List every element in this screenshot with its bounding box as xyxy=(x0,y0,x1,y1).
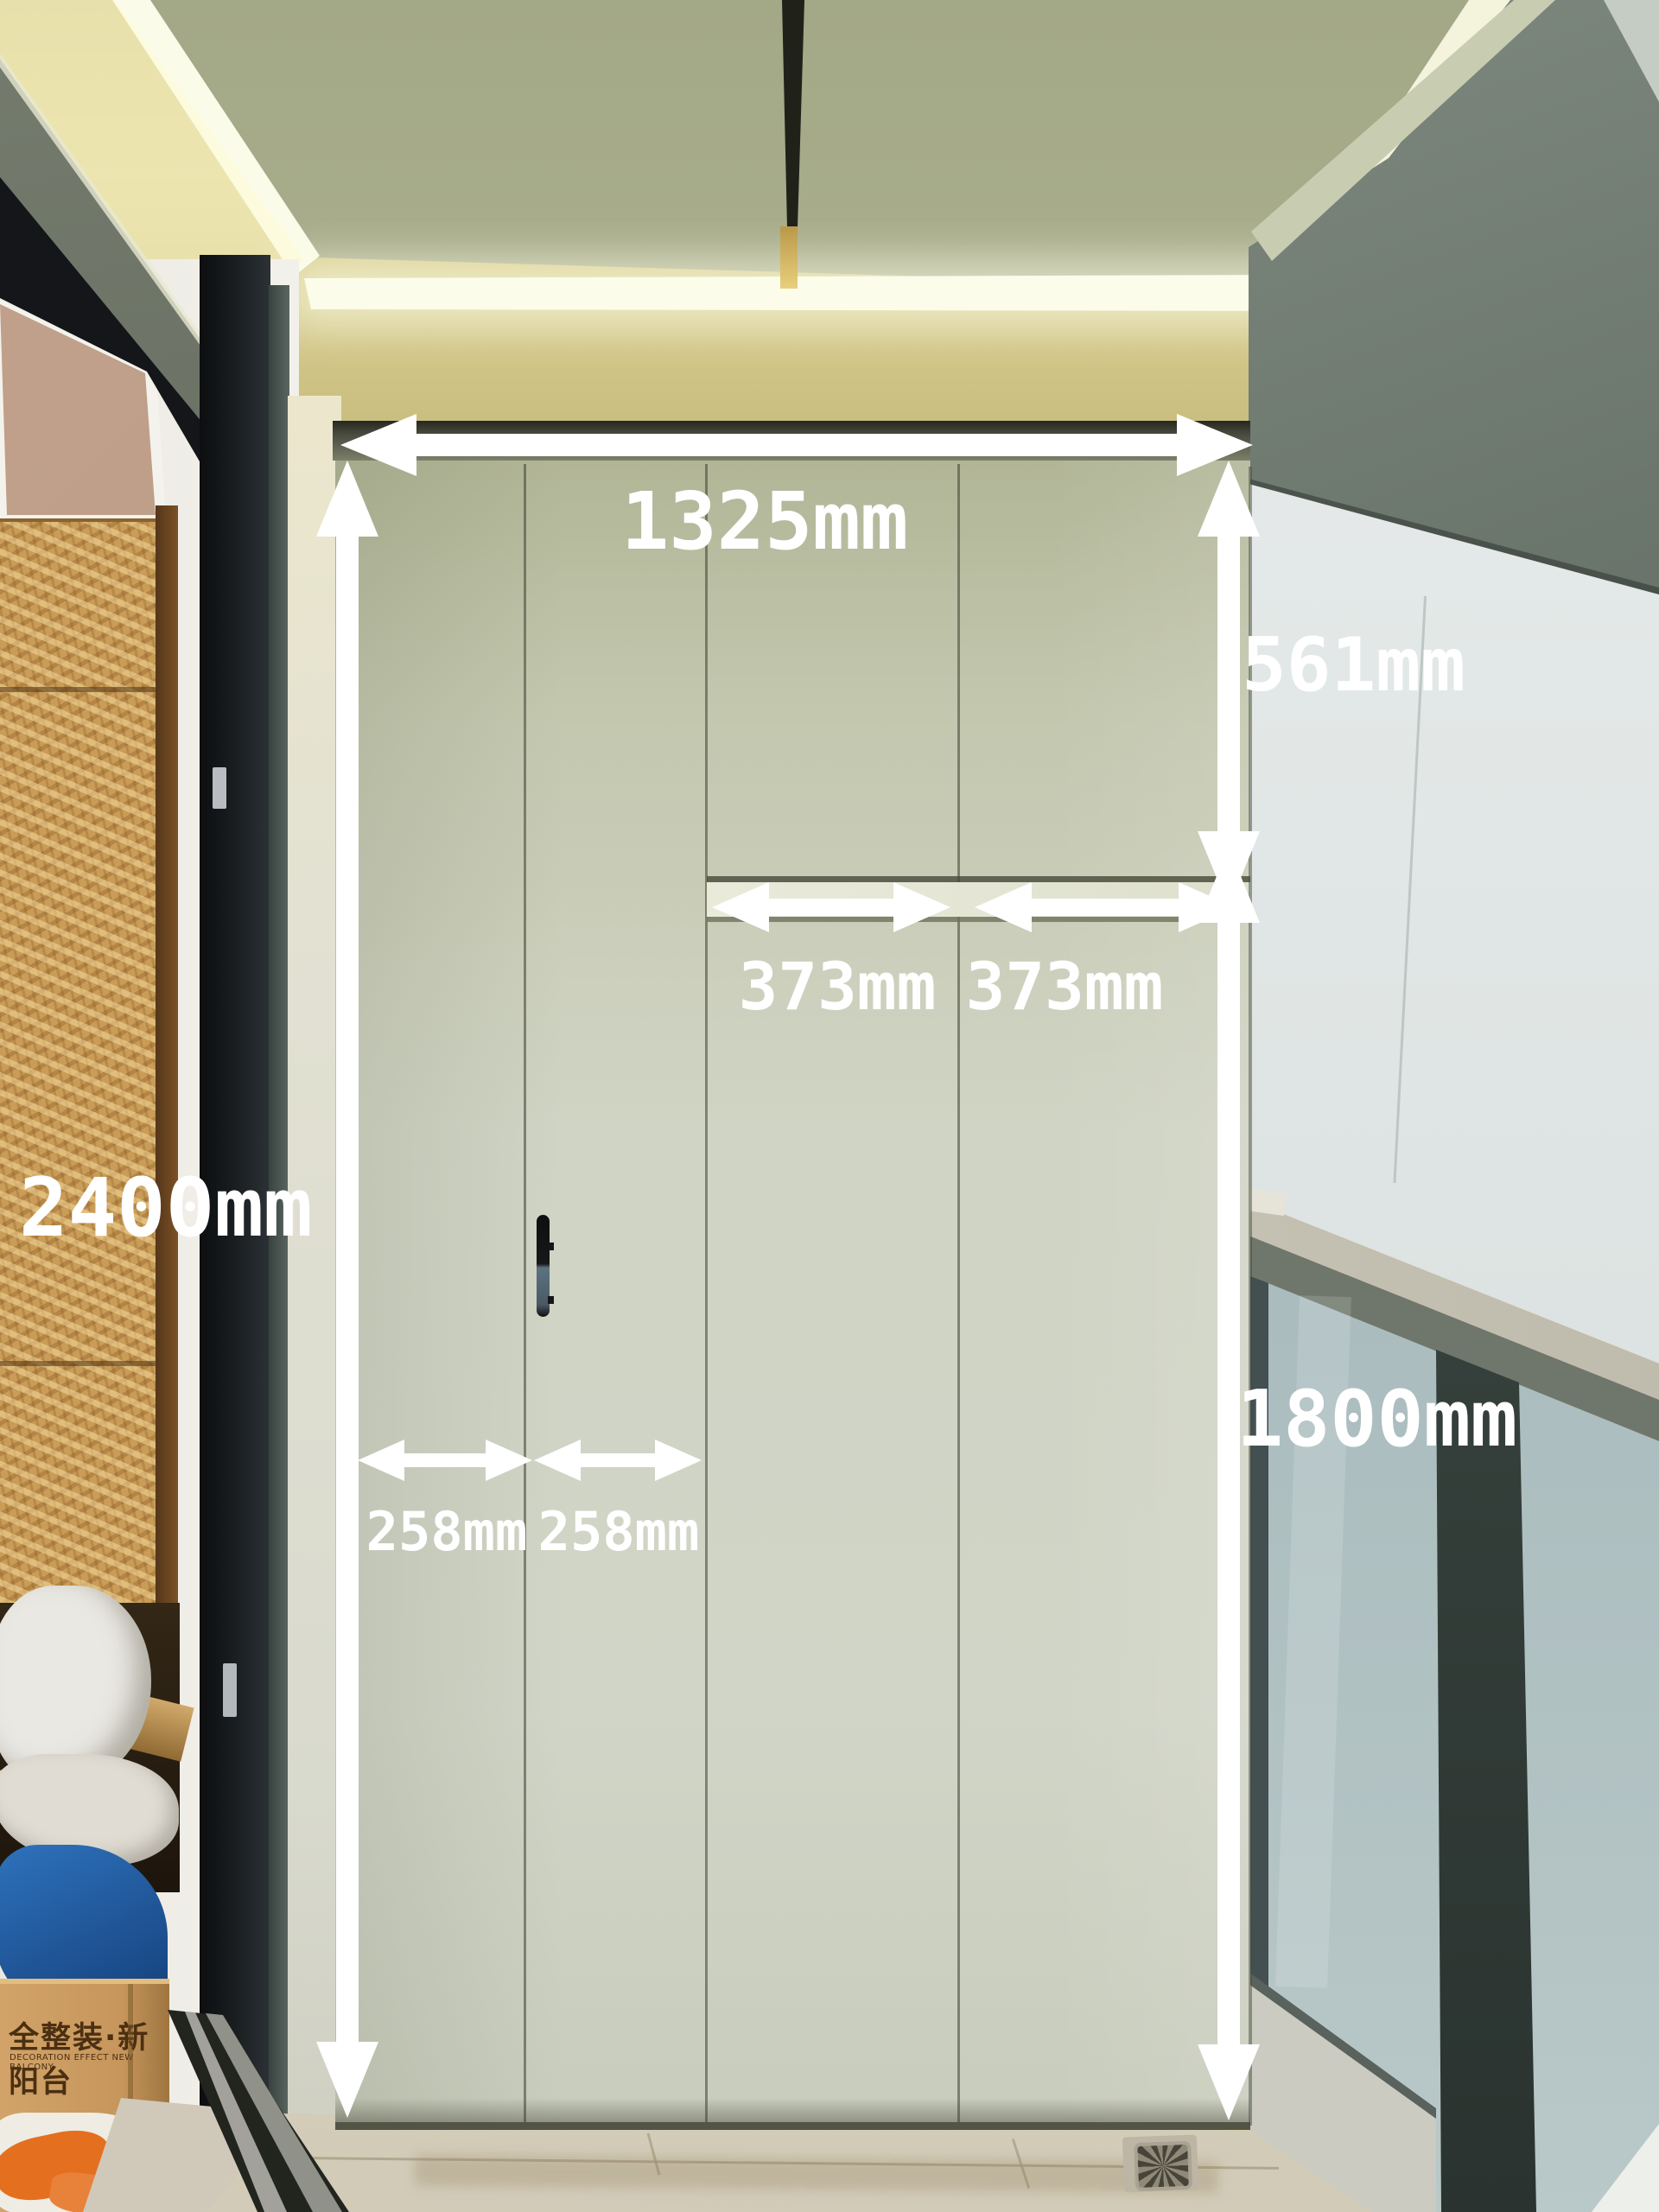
floor-drain xyxy=(1122,2135,1198,2193)
osb-panel xyxy=(0,518,157,1619)
door-seam-2 xyxy=(705,464,708,2125)
dim-arrow-total-height xyxy=(316,461,378,2118)
osb-edge-board xyxy=(156,505,178,1629)
dim-label-upper-door-left: 373mm xyxy=(739,954,937,1020)
arrow-bar xyxy=(395,1453,495,1467)
arrow-bar xyxy=(758,899,905,916)
arrow-bar xyxy=(1217,521,1240,846)
arrow-head-right xyxy=(893,882,950,932)
dim-label-tall-door-height: 1800mm xyxy=(1236,1381,1517,1459)
dim-label-upper-height: 561mm xyxy=(1242,628,1465,702)
osb-seam-upper xyxy=(0,687,157,692)
dim-label-total-width: 1325mm xyxy=(621,482,908,562)
dim-arrow-total-width xyxy=(340,414,1253,476)
arrow-bar xyxy=(336,521,359,2056)
dim-label-upper-door-right: 373mm xyxy=(966,954,1164,1020)
cabinet-side-shading xyxy=(335,461,1250,2130)
arrow-bar xyxy=(571,1453,664,1467)
arrow-head-right xyxy=(1179,882,1236,932)
osb-seam-lower xyxy=(0,1361,157,1366)
arrow-bar xyxy=(1217,907,1240,2059)
dim-label-fold-door-left: 258mm xyxy=(366,1505,528,1559)
dim-arrow-fold-door-right xyxy=(534,1440,702,1481)
arrow-head-right xyxy=(486,1440,532,1481)
door-seam-1 xyxy=(524,464,526,2125)
dim-arrow-fold-door-left xyxy=(358,1440,532,1481)
door-latch-upper xyxy=(213,767,226,809)
dim-arrow-tall-door-height xyxy=(1198,847,1260,2120)
upper-divider-shadow xyxy=(707,876,1250,882)
door-seam-3 xyxy=(957,464,960,2125)
handle-stem-bottom xyxy=(548,1296,554,1304)
handle-stem-top xyxy=(548,1243,554,1250)
arrow-bar xyxy=(401,434,1192,456)
dim-arrow-upper-door-left xyxy=(712,882,950,932)
cabinet-bottom-line xyxy=(335,2122,1250,2130)
box-label-en: DECORATION EFFECT NEW BALCONY xyxy=(10,2053,169,2072)
dim-label-total-height: 2400mm xyxy=(19,1168,313,1249)
door-latch-lower xyxy=(223,1663,237,1717)
balcony-photo: 全整装·新阳台 DECORATION EFFECT NEW BALCONY xyxy=(0,0,1659,2212)
arrow-head-right xyxy=(655,1440,702,1481)
arrow-head-bottom xyxy=(316,2042,378,2118)
ceiling-gold-trim xyxy=(780,226,798,289)
arrow-bar xyxy=(1020,899,1190,916)
dim-arrow-upper-door-right xyxy=(975,882,1236,932)
arrow-head-bottom xyxy=(1198,2044,1260,2120)
dim-label-fold-door-right: 258mm xyxy=(538,1505,700,1559)
floor-drain-grate xyxy=(1134,2141,1192,2191)
